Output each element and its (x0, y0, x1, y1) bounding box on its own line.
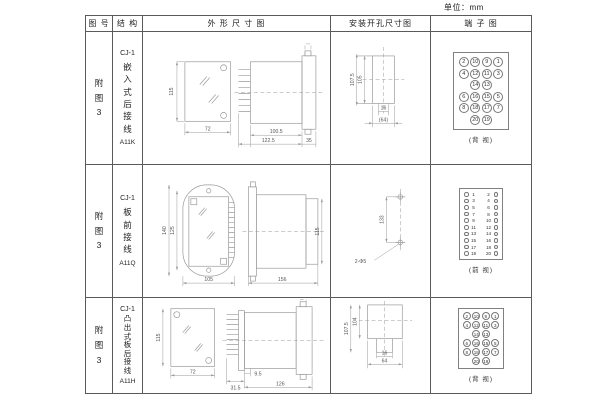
header-outline: 外 形 尺 寸 图 (143, 16, 331, 32)
terminal-19: 19 (482, 115, 492, 125)
unit-label: 单位：mm (444, 2, 484, 13)
terminal-15: 15 (482, 92, 492, 102)
cutout-shape (357, 47, 405, 113)
terminal-hole (494, 199, 499, 204)
front-dims: 115 72 (156, 309, 215, 379)
terminal-hole (494, 232, 499, 237)
front-view (171, 309, 215, 367)
terminal-2: 2 (459, 57, 469, 67)
terminal-7: 7 (493, 103, 503, 113)
terminal-17: 17 (482, 103, 492, 113)
dim-hole-spacing: 133 (379, 215, 385, 224)
terminal-3: 3 (493, 69, 503, 79)
terminal-14: 14 (470, 80, 480, 90)
dim-front-height: 115 (156, 333, 162, 341)
install-dims: 133 2-Φ5 (355, 197, 399, 265)
terminal-7: 7 (491, 348, 499, 356)
dim-body-length: 126 (276, 381, 285, 387)
terminal-strip-front: 1234567891011121314151617181920 (459, 188, 503, 260)
dim-outer-height: 107.5 (344, 322, 350, 335)
terminal-19: 19 (482, 357, 490, 365)
terminal-1: 1 (491, 312, 499, 320)
dim-slot-width: 16 (381, 105, 387, 111)
model-label: CJ-1 (120, 306, 135, 313)
terminal-18: 18 (472, 348, 480, 356)
structure-name: 凸出式板后接线 (122, 315, 133, 375)
terminal-11: 11 (469, 225, 479, 230)
terminal-5: 5 (491, 339, 499, 347)
structure-code: A11H (120, 378, 136, 385)
terminal-hole (494, 251, 499, 256)
view-caption: (背 视) (469, 134, 493, 144)
terminal-hole (494, 245, 499, 250)
terminal-16: 16 (470, 92, 480, 102)
terminal-2: 2 (484, 192, 494, 197)
structure-code: A11Q (119, 260, 135, 267)
terminal-18: 18 (470, 103, 480, 113)
dim-inner-height: 104 (353, 317, 359, 326)
dim-body-length: 156 (278, 277, 287, 283)
figure-no-row3: 附图3 (86, 298, 113, 393)
terminal-4: 4 (459, 69, 469, 79)
model-label: CJ-1 (120, 195, 135, 202)
header-figure-no: 图 号 (86, 16, 113, 32)
terminal-5: 5 (493, 92, 503, 102)
front-dims: 140 125 105 (162, 185, 234, 286)
terminal-16: 16 (472, 339, 480, 347)
terminal-hole (494, 225, 499, 230)
terminal-10: 10 (484, 218, 494, 223)
outline-drawing-a11q: 140 125 105 115 (143, 165, 331, 298)
install-dims: 104 107.5 16 64 (344, 305, 402, 368)
model-label: CJ-1 (120, 50, 135, 57)
dim-pin-depth: 31.5 (230, 385, 240, 391)
terminal-14: 14 (472, 330, 480, 338)
dim-hole-span: (64) (379, 117, 388, 123)
terminal-13: 13 (482, 330, 490, 338)
dim-side-height: 115 (315, 227, 321, 235)
terminal-17: 17 (469, 245, 479, 250)
header-install: 安装开孔尺寸图 (331, 16, 431, 32)
terminal-hole (494, 218, 499, 223)
terminal-20: 20 (470, 115, 480, 125)
header-terminal: 端 子 图 (431, 16, 531, 32)
terminal-15: 15 (469, 238, 479, 243)
terminal-8: 8 (459, 103, 469, 113)
install-drawing-a11h: 104 107.5 16 64 (331, 298, 431, 393)
terminal-6: 6 (463, 339, 471, 347)
install-drawing-a11k: 105 107.5 16 (64) (331, 32, 431, 165)
dim-slot-width: 16 (382, 350, 388, 356)
side-dims: 9.5 31.5 126 (227, 358, 313, 391)
terminal-block-rear: 2109141211314136161558181772019 (453, 52, 510, 130)
terminal-hole (494, 192, 499, 197)
side-view (223, 300, 324, 380)
terminal-10: 10 (472, 312, 480, 320)
dim-outer-height: 140 (162, 226, 168, 235)
outline-drawing-a11h: 115 72 9.5 31 (143, 298, 331, 393)
terminal-3: 3 (469, 198, 479, 203)
front-view (185, 62, 231, 122)
terminal-14: 14 (484, 231, 494, 236)
dim-front-width: 72 (205, 126, 211, 132)
hole-size-label: 2-Φ5 (355, 259, 367, 265)
spec-table: 图 号 结 构 外 形 尺 寸 图 安装开孔尺寸图 端 子 图 附图3 CJ-1… (85, 15, 532, 394)
document-page: { "page": { "unit_label": "单位：mm" }, "ta… (0, 0, 600, 400)
terminal-12: 12 (470, 69, 480, 79)
terminal-12: 12 (484, 225, 494, 230)
dim-inner-height: 105 (358, 75, 364, 84)
terminal-11: 11 (482, 69, 492, 79)
dim-front-height: 115 (169, 87, 175, 95)
terminal-1: 1 (469, 192, 479, 197)
terminal-diagram-a11h: 2109141211314136161558181772019 (背 视) (431, 298, 531, 393)
terminal-1: 1 (493, 57, 503, 67)
outline-drawing-a11k: 115 72 100.5 (143, 32, 331, 165)
terminal-19: 19 (469, 251, 479, 256)
structure-row3: CJ-1 凸出式板后接线 A11H (113, 298, 143, 393)
terminal-13: 13 (482, 80, 492, 90)
dim-inner-height: 125 (170, 226, 176, 235)
header-structure: 结 构 (113, 16, 143, 32)
terminal-20: 20 (472, 357, 480, 365)
structure-row2: CJ-1 板前接线 A11Q (113, 165, 143, 298)
side-dims: 115 156 (248, 199, 323, 286)
figure-no-row2: 附图3 (86, 165, 113, 298)
dim-body-length: 100.5 (270, 129, 283, 135)
holes (395, 189, 405, 250)
terminal-4: 4 (463, 321, 471, 329)
dim-hole-span: 64 (382, 358, 388, 364)
terminal-6: 6 (484, 205, 494, 210)
terminal-16: 16 (484, 238, 494, 243)
terminal-4: 4 (484, 198, 494, 203)
dim-step: 9.5 (254, 371, 261, 377)
terminal-2: 2 (463, 312, 471, 320)
side-view (235, 44, 324, 134)
install-drawing-a11q: 133 2-Φ5 (331, 165, 431, 298)
dim-outer-height: 107.5 (350, 73, 356, 86)
terminal-6: 6 (459, 92, 469, 102)
side-view (242, 182, 325, 281)
terminal-9: 9 (482, 57, 492, 67)
terminal-hole (494, 238, 499, 243)
structure-row1: CJ-1 嵌入式后接线 A11K (113, 32, 143, 165)
terminal-diagram-a11q: 1234567891011121314151617181920 (前 视) (431, 165, 531, 298)
terminal-8: 8 (484, 212, 494, 217)
terminal-13: 13 (469, 231, 479, 236)
structure-name: 嵌入式后接线 (122, 61, 133, 135)
terminal-9: 9 (469, 218, 479, 223)
terminal-5: 5 (469, 205, 479, 210)
terminal-20: 20 (484, 251, 494, 256)
terminal-hole (494, 205, 499, 210)
structure-name: 板前接线 (122, 206, 133, 255)
view-caption: (背 视) (469, 373, 493, 383)
terminal-10: 10 (470, 57, 480, 67)
dim-front-width: 105 (204, 277, 213, 283)
structure-code: A11K (120, 139, 135, 146)
terminal-17: 17 (482, 348, 490, 356)
figure-no-row1: 附图3 (86, 32, 113, 165)
front-dims: 115 72 (169, 62, 231, 135)
terminal-hole (494, 212, 499, 217)
terminal-9: 9 (482, 312, 490, 320)
terminal-18: 18 (484, 245, 494, 250)
terminal-block-rear: 2109141211314136161558181772019 (458, 308, 505, 369)
terminal-3: 3 (491, 321, 499, 329)
view-caption: (前 视) (469, 264, 493, 274)
dim-total-length: 122.5 (262, 138, 275, 144)
dim-front-width: 72 (190, 369, 196, 375)
terminal-15: 15 (482, 339, 490, 347)
terminal-8: 8 (463, 348, 471, 356)
terminal-7: 7 (469, 212, 479, 217)
terminal-12: 12 (472, 321, 480, 329)
front-view (183, 185, 235, 276)
terminal-11: 11 (482, 321, 490, 329)
terminal-diagram-a11k: 2109141211314136161558181772019 (背 视) (431, 32, 531, 165)
dim-flange-depth: 35 (306, 138, 312, 144)
